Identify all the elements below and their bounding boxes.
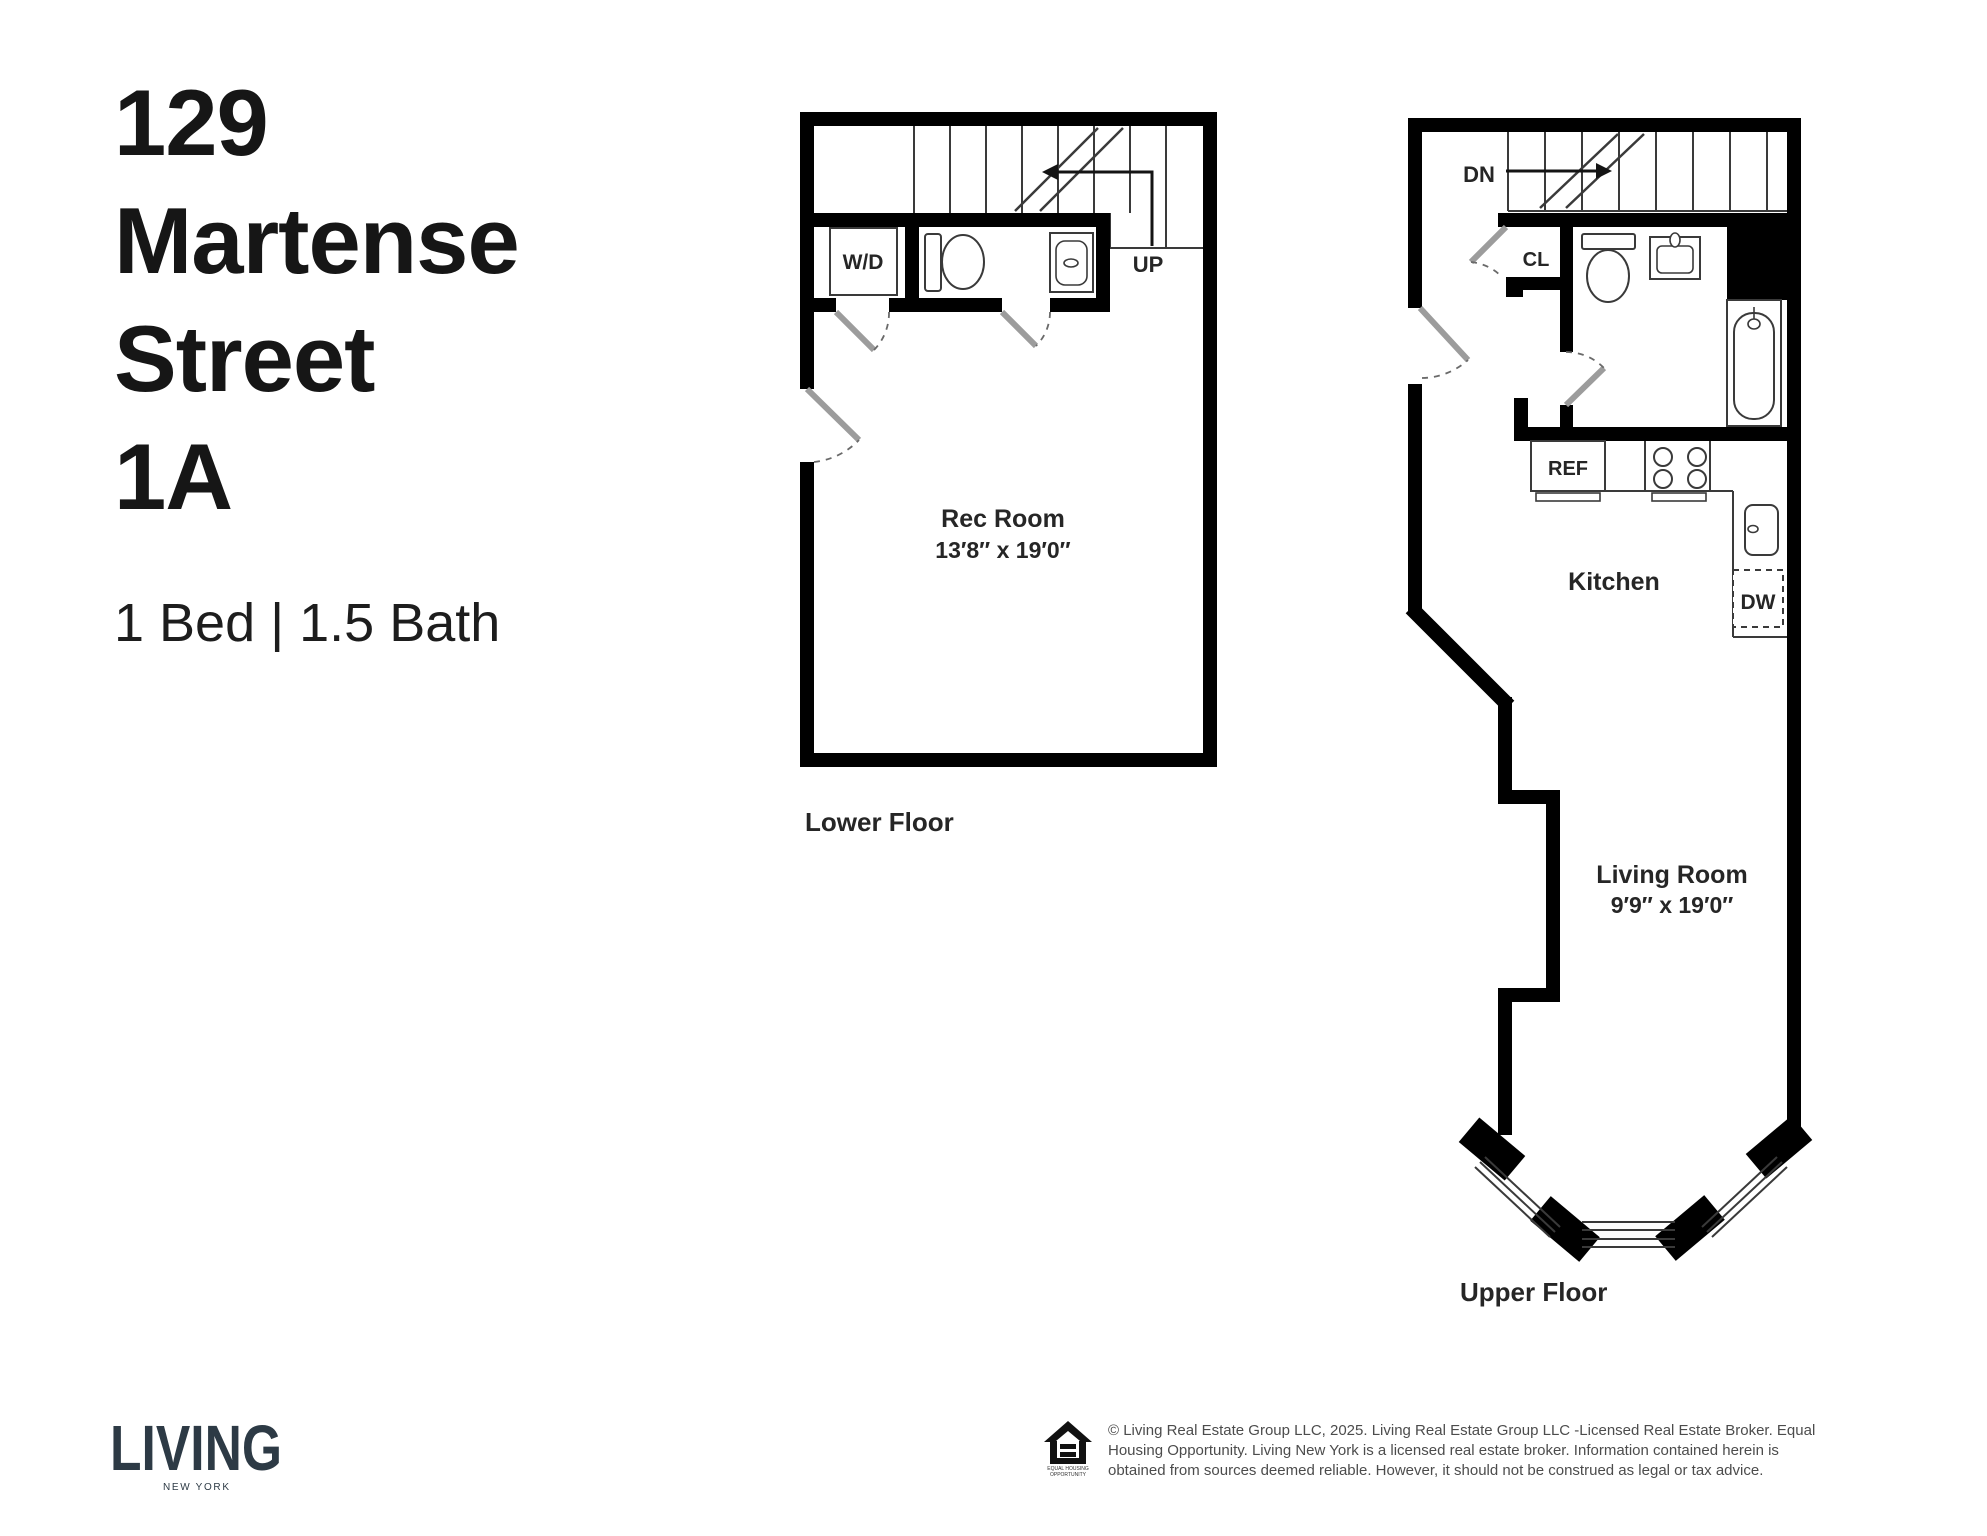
kitchen-label: Kitchen [1568, 568, 1660, 596]
stove-icon [1605, 441, 1733, 501]
toilet-icon [925, 234, 984, 291]
legal-line: obtained from sources deemed reliable. H… [1108, 1461, 1815, 1481]
upper-floor-plan: REF DW [1395, 95, 1835, 1320]
address-line: Martense [114, 182, 519, 300]
living-room-label: Living Room [1596, 861, 1747, 889]
bathroom-door-swing [1566, 352, 1604, 405]
closet-door-swing [1471, 227, 1506, 277]
window-panes [1475, 1157, 1787, 1247]
bay-window [1459, 1115, 1813, 1261]
stairs-up-icon [914, 126, 1203, 248]
ref-label: REF [1548, 458, 1588, 480]
sink-icon [1650, 233, 1700, 279]
legal-line: © Living Real Estate Group LLC, 2025. Li… [1108, 1421, 1815, 1441]
up-label: UP [1133, 252, 1164, 277]
rec-room-label: Rec Room [941, 505, 1065, 533]
lower-floor-caption: Lower Floor [805, 807, 954, 837]
legal-disclaimer: © Living Real Estate Group LLC, 2025. Li… [1108, 1421, 1815, 1481]
address-line: 1A [114, 418, 519, 536]
bathroom-door-swing [1002, 312, 1050, 346]
floor-plan-sheet: 129 Martense Street 1A 1 Bed | 1.5 Bath [0, 0, 1987, 1536]
dw-label: DW [1741, 591, 1776, 614]
property-address: 129 Martense Street 1A [114, 64, 519, 536]
washer-dryer-icon: W/D [830, 228, 897, 295]
cl-label: CL [1523, 249, 1550, 271]
bed-bath-specs: 1 Bed | 1.5 Bath [114, 592, 500, 654]
living-room-dims: 9′9″ x 19′0″ [1611, 892, 1734, 918]
duct-block [1727, 213, 1787, 300]
lower-floor-plan: W/D UP Rec Room 13′8″ x 19′0″ Lowe [780, 90, 1250, 850]
toilet-icon [1582, 234, 1635, 302]
vanity-sink-icon [1050, 233, 1093, 292]
brand-wordmark: LIVING [110, 1414, 282, 1484]
legal-line: Housing Opportunity. Living New York is … [1108, 1441, 1815, 1461]
dishwasher-icon: DW [1733, 570, 1783, 627]
refrigerator-icon: REF [1531, 441, 1605, 501]
bathtub-icon [1727, 300, 1781, 426]
equal-housing-icon: EQUAL HOUSING OPPORTUNITY [1042, 1419, 1094, 1479]
address-line: Street [114, 300, 519, 418]
wd-label: W/D [843, 251, 884, 274]
dn-label: DN [1463, 162, 1495, 187]
lower-outer-walls [800, 112, 1217, 767]
wd-door-swing [836, 312, 889, 350]
eho-text-line: OPPORTUNITY [1050, 1472, 1087, 1478]
entry-door-swing [807, 389, 859, 462]
upper-floor-caption: Upper Floor [1460, 1277, 1607, 1307]
entry-door-swing [1420, 308, 1468, 378]
address-line: 129 [114, 64, 519, 182]
kitchen-sink-icon [1745, 505, 1778, 555]
rec-room-dims: 13′8″ x 19′0″ [935, 537, 1070, 563]
brand-subtitle: NEW YORK [163, 1482, 229, 1493]
living-new-york-logo: LIVING NEW YORK [108, 1414, 308, 1499]
down-arrow [1506, 163, 1612, 179]
